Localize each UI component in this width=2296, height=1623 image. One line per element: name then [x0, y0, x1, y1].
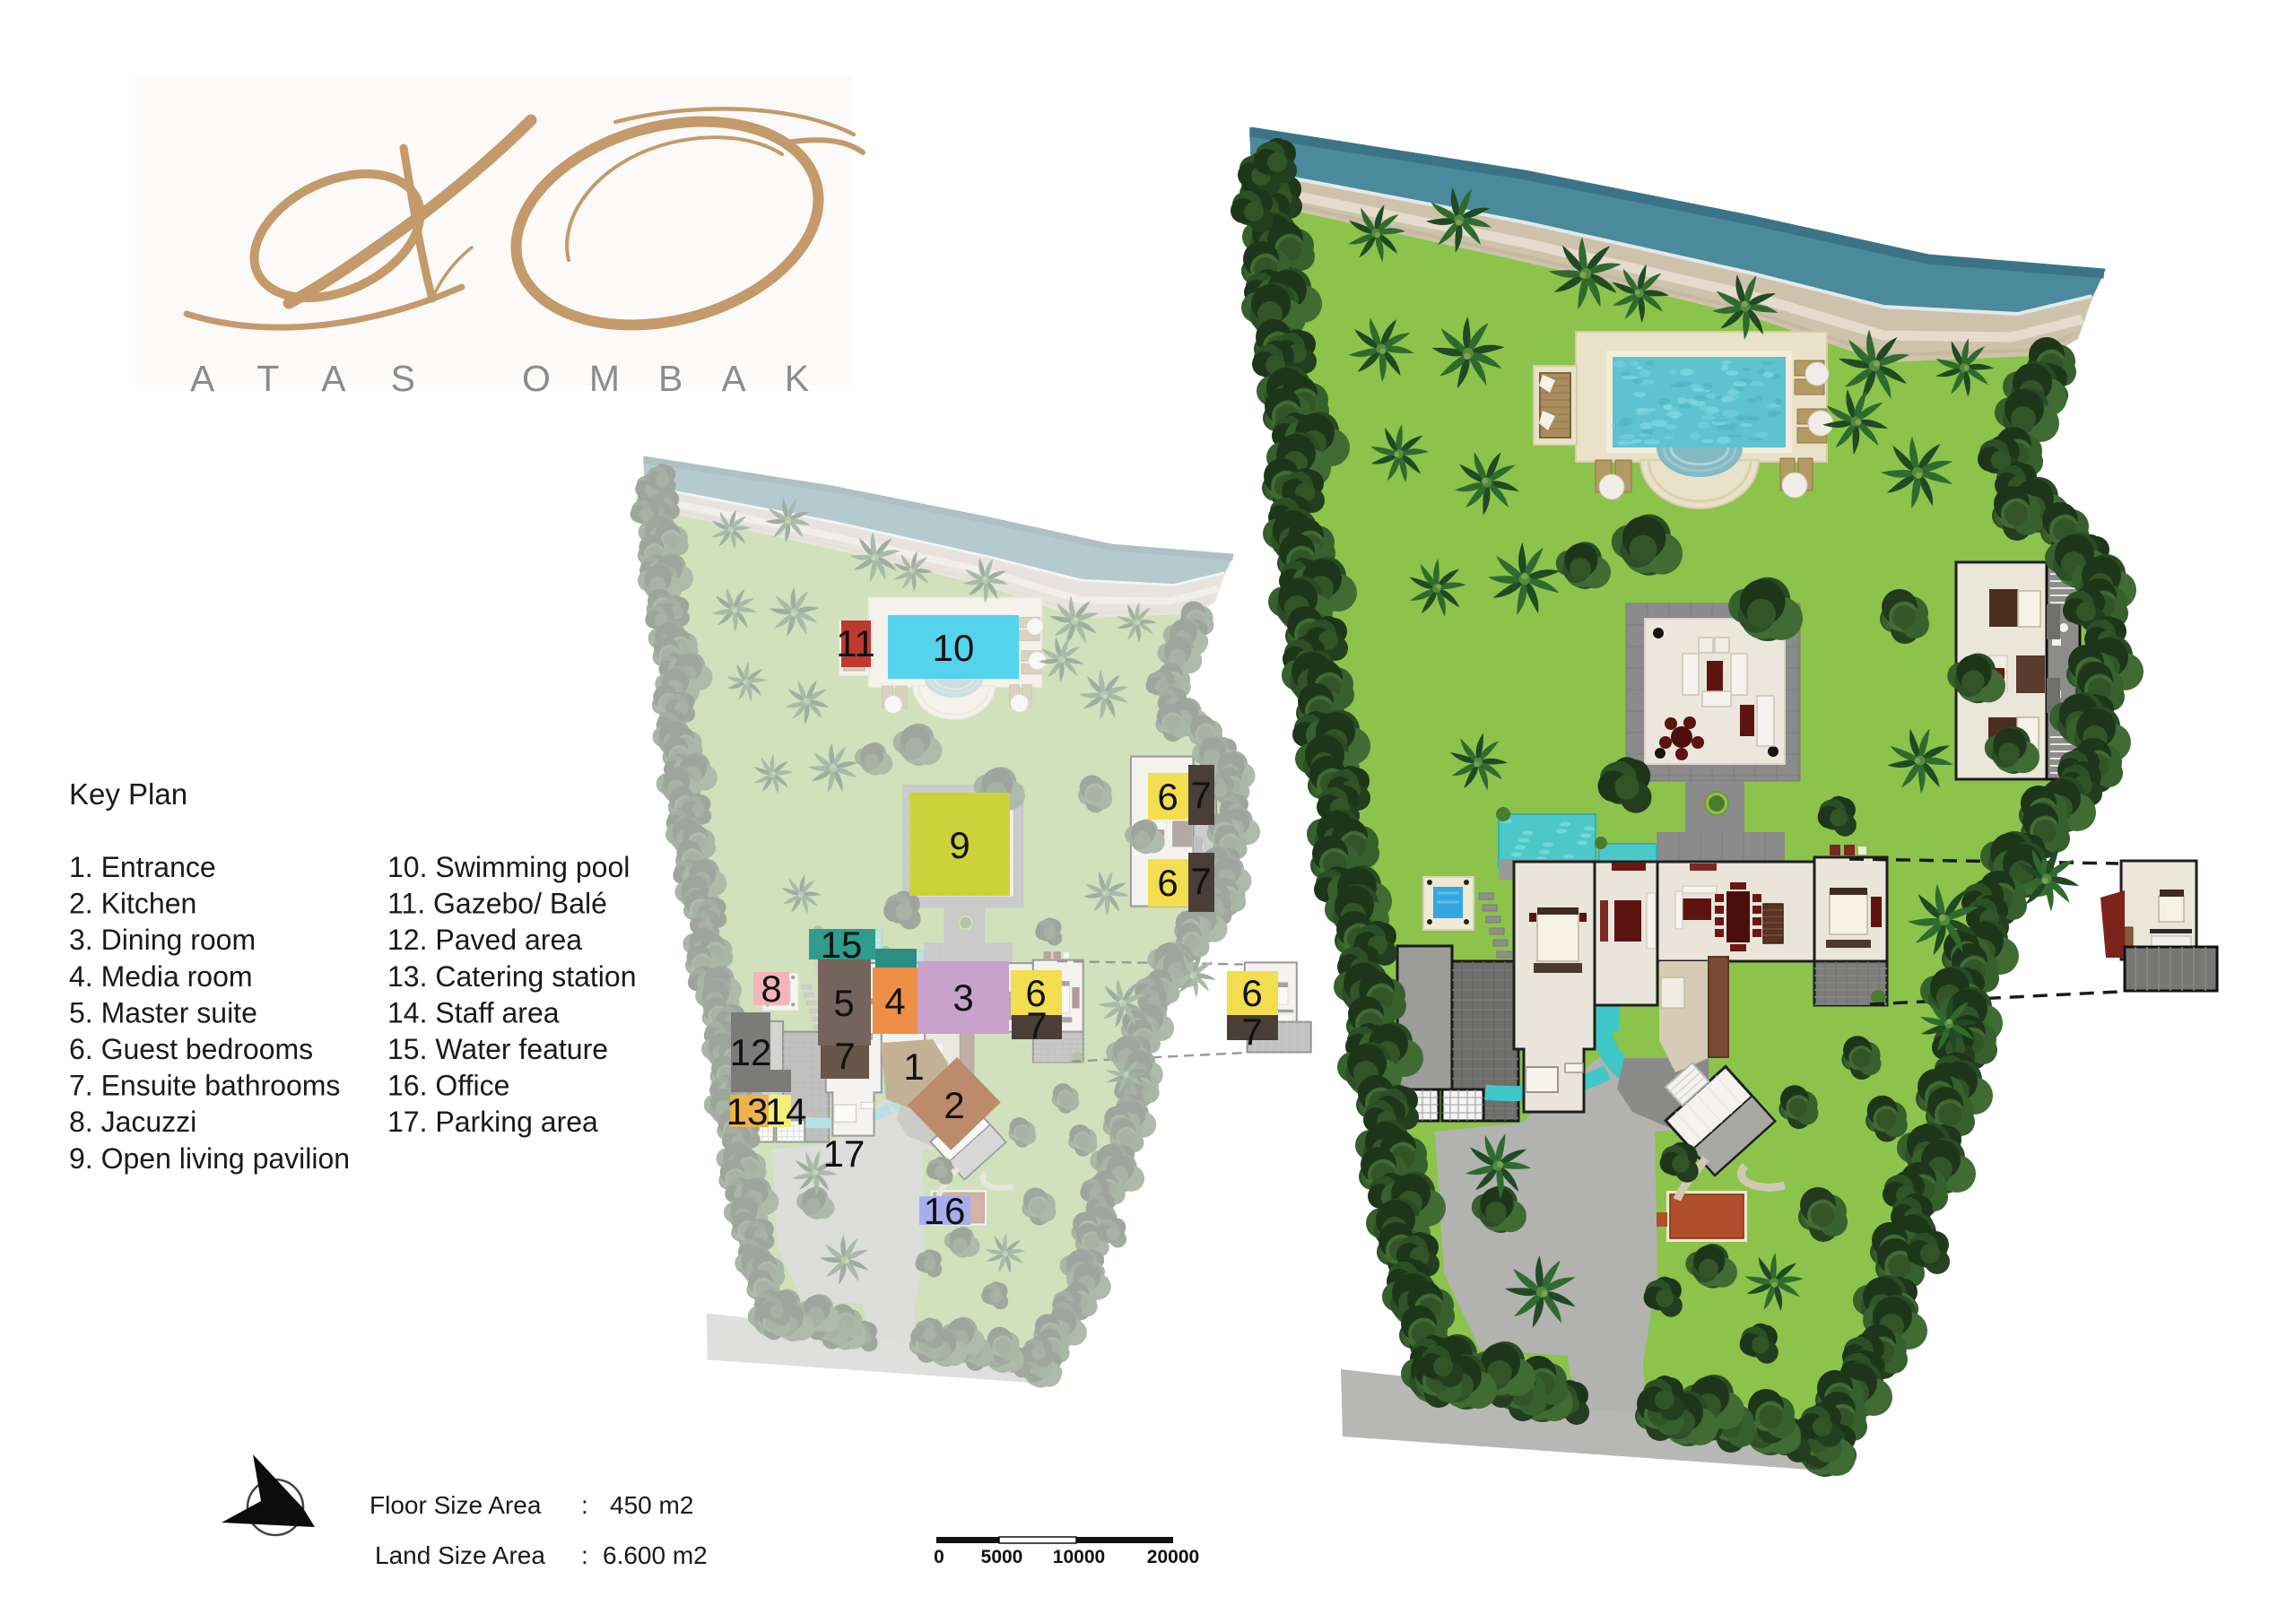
svg-text:ATAS: ATAS	[190, 358, 460, 399]
svg-text:15. Water feature: 15. Water feature	[387, 1033, 608, 1065]
svg-text:6: 6	[1157, 776, 1178, 818]
svg-text:6: 6	[1241, 972, 1262, 1014]
svg-text:OMBAK: OMBAK	[522, 358, 848, 399]
svg-text:5. Master suite: 5. Master suite	[69, 996, 257, 1028]
svg-text:3: 3	[952, 976, 973, 1019]
svg-text:6.600 m2: 6.600 m2	[603, 1541, 708, 1569]
svg-text:Key Plan: Key Plan	[69, 777, 187, 811]
svg-text:15: 15	[821, 924, 863, 966]
svg-text:4: 4	[884, 980, 905, 1022]
svg-text:6: 6	[1157, 862, 1178, 904]
svg-text:2: 2	[944, 1084, 964, 1126]
svg-text:11. Gazebo/ Balé: 11. Gazebo/ Balé	[387, 888, 607, 920]
svg-text:8. Jacuzzi: 8. Jacuzzi	[69, 1106, 196, 1138]
svg-text:1. Entrance: 1. Entrance	[69, 851, 216, 883]
svg-text:20000: 20000	[1147, 1547, 1199, 1567]
svg-text:12: 12	[730, 1031, 772, 1073]
svg-text:9: 9	[949, 824, 970, 866]
svg-text:7. Ensuite bathrooms: 7. Ensuite bathrooms	[69, 1070, 340, 1102]
svg-text:7: 7	[1241, 1011, 1262, 1053]
svg-text:13. Catering station: 13. Catering station	[387, 960, 637, 993]
svg-text:450 m2: 450 m2	[610, 1491, 693, 1519]
svg-text:0: 0	[934, 1547, 944, 1567]
svg-text:5: 5	[833, 982, 854, 1024]
svg-text:10. Swimming pool: 10. Swimming pool	[387, 851, 630, 883]
svg-text:7: 7	[1026, 1004, 1047, 1046]
svg-text:13: 13	[726, 1090, 769, 1133]
svg-text:12. Paved area: 12. Paved area	[387, 924, 582, 956]
svg-text:14: 14	[765, 1090, 807, 1133]
svg-text:10000: 10000	[1053, 1547, 1105, 1567]
svg-text:6. Guest bedrooms: 6. Guest bedrooms	[69, 1033, 313, 1065]
svg-text:7: 7	[1190, 860, 1211, 902]
svg-text:17. Parking area: 17. Parking area	[387, 1106, 598, 1138]
svg-text:3. Dining room: 3. Dining room	[69, 924, 256, 956]
svg-text:2. Kitchen: 2. Kitchen	[69, 888, 196, 920]
svg-text:11: 11	[836, 622, 875, 664]
svg-text:9. Open living pavilion: 9. Open living pavilion	[69, 1142, 350, 1175]
svg-text:17: 17	[823, 1133, 865, 1175]
svg-text:Floor Size Area: Floor Size Area	[370, 1491, 542, 1519]
svg-text:7: 7	[834, 1035, 855, 1077]
svg-text::: :	[581, 1541, 588, 1569]
svg-text::: :	[581, 1491, 588, 1519]
svg-text:Land Size Area: Land Size Area	[375, 1541, 545, 1569]
svg-text:1: 1	[903, 1046, 924, 1088]
svg-text:4. Media room: 4. Media room	[69, 960, 253, 993]
svg-text:5000: 5000	[981, 1547, 1023, 1567]
svg-text:14. Staff area: 14. Staff area	[387, 996, 560, 1028]
svg-text:16: 16	[924, 1190, 966, 1232]
svg-text:16. Office: 16. Office	[387, 1070, 509, 1102]
svg-text:8: 8	[761, 968, 781, 1010]
svg-text:10: 10	[933, 627, 975, 669]
svg-text:7: 7	[1190, 774, 1211, 816]
